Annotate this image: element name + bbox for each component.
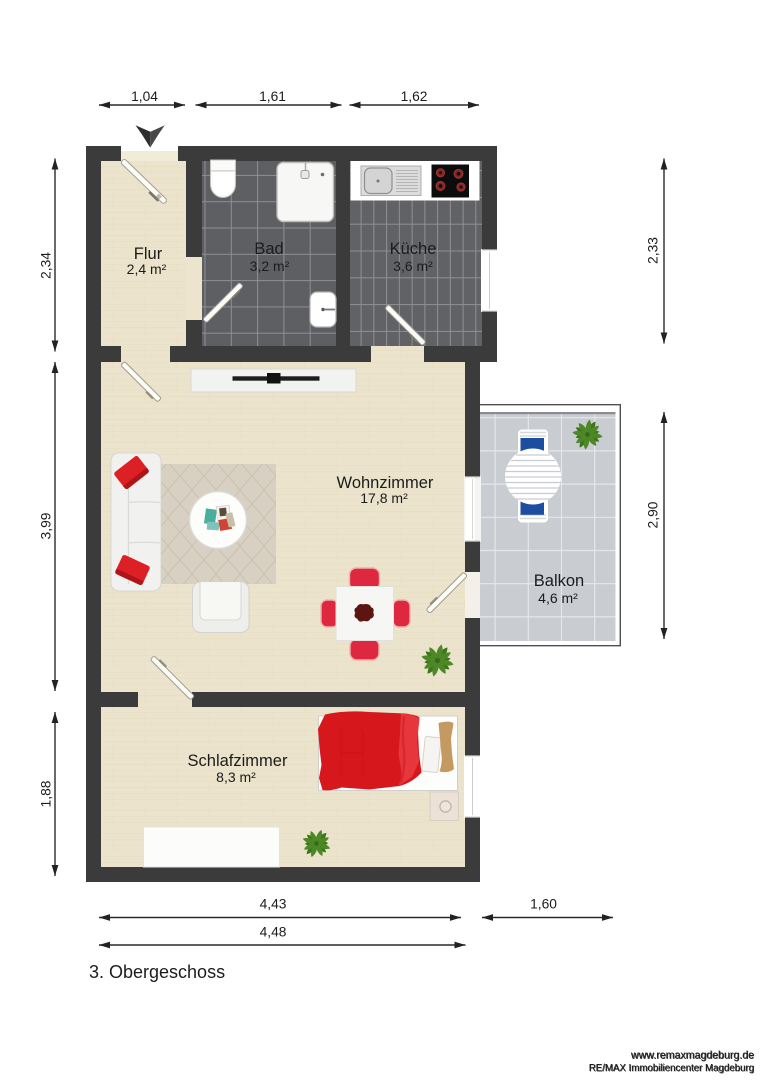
svg-text:2,33: 2,33	[646, 237, 661, 264]
svg-text:4,43: 4,43	[260, 897, 287, 912]
svg-text:8,3 m²: 8,3 m²	[216, 769, 256, 785]
svg-text:1,04: 1,04	[131, 89, 158, 104]
svg-text:2,34: 2,34	[39, 252, 54, 279]
svg-text:3,99: 3,99	[39, 512, 54, 539]
svg-text:Bad: Bad	[254, 240, 283, 258]
svg-text:17,8 m²: 17,8 m²	[360, 490, 408, 506]
svg-text:RE/MAX Immobiliencenter Magdeb: RE/MAX Immobiliencenter Magdeburg	[589, 1063, 754, 1074]
svg-text:www.remaxmagdeburg.de: www.remaxmagdeburg.de	[630, 1050, 754, 1062]
svg-text:4,48: 4,48	[260, 925, 287, 940]
svg-text:1,60: 1,60	[530, 897, 557, 912]
svg-text:1,61: 1,61	[259, 89, 286, 104]
svg-text:3. Obergeschoss: 3. Obergeschoss	[89, 962, 225, 982]
svg-text:4,6 m²: 4,6 m²	[538, 590, 578, 606]
svg-text:2,4 m²: 2,4 m²	[127, 261, 167, 277]
svg-text:1,88: 1,88	[39, 780, 54, 807]
svg-text:Schlafzimmer: Schlafzimmer	[188, 752, 288, 770]
svg-text:3,6 m²: 3,6 m²	[393, 258, 433, 274]
svg-text:1,62: 1,62	[401, 89, 428, 104]
svg-text:Balkon: Balkon	[534, 572, 584, 590]
svg-text:Küche: Küche	[390, 240, 437, 258]
svg-text:3,2 m²: 3,2 m²	[250, 258, 290, 274]
svg-text:2,90: 2,90	[646, 501, 661, 528]
